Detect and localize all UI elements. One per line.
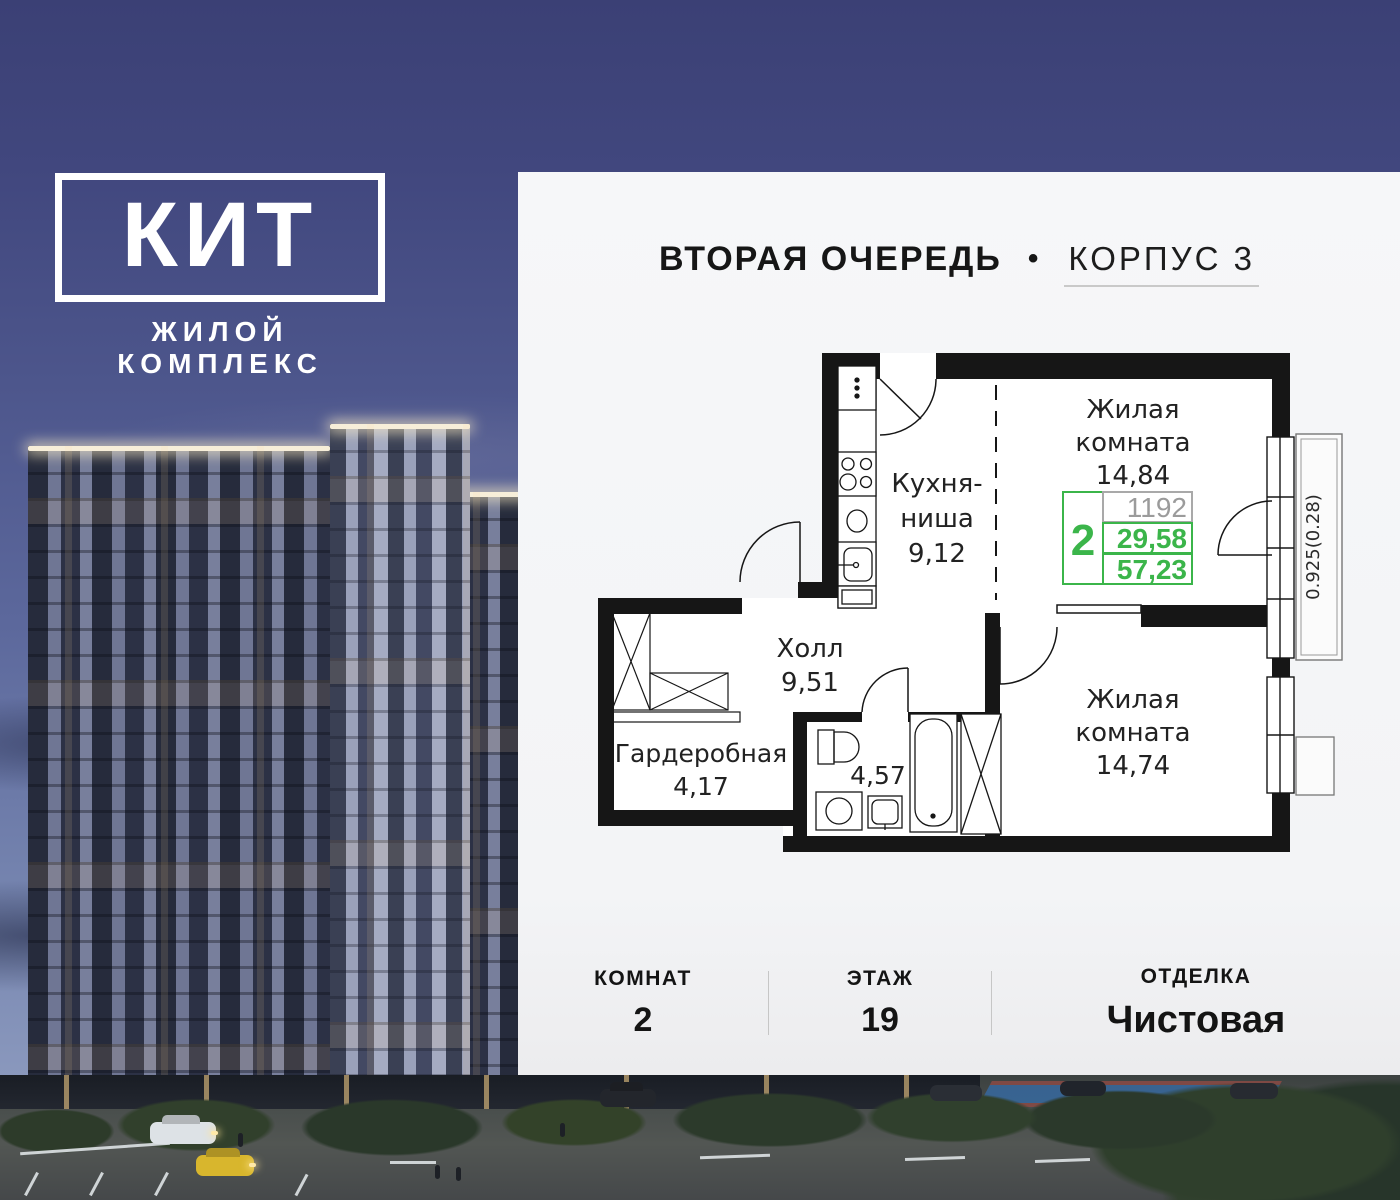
floor-label: ЭТАЖ: [847, 967, 914, 991]
finish-value: Чистовая: [1107, 999, 1286, 1042]
hall-area: 9,51: [781, 668, 839, 698]
hall-name: Холл: [777, 634, 844, 664]
poster-canvas: КИТ ЖИЛОЙ КОМПЛЕКС ВТОРАЯ ОЧЕРЕДЬ • КОРП…: [0, 0, 1400, 1200]
car-headlight: [249, 1163, 256, 1167]
panel-header: ВТОРАЯ ОЧЕРЕДЬ • КОРПУС 3: [518, 240, 1400, 287]
car-headlight: [211, 1131, 218, 1135]
finish-summary: ОТДЕЛКА Чистовая: [992, 948, 1400, 1058]
floor-value: 19: [861, 1001, 899, 1040]
finish-label: ОТДЕЛКА: [1141, 965, 1252, 989]
ac-shelf: [1296, 737, 1334, 795]
dark-car: [1060, 1081, 1106, 1096]
lit-windows-overlay: [28, 446, 330, 1092]
wardrobe-name: Гардеробная: [615, 739, 787, 768]
unit-number: 1192: [1127, 492, 1187, 523]
apartment-stats-box: 2 1192 29,58 57,23: [1063, 492, 1192, 585]
rooms-label: КОМНАТ: [594, 967, 692, 991]
bullet-separator: •: [1028, 242, 1039, 276]
pedestrian: [560, 1123, 565, 1137]
dark-car: [930, 1085, 982, 1101]
kitchen-name-line2: ниша: [900, 504, 974, 534]
car-cabin: [610, 1082, 642, 1091]
tower-left-facade: [28, 446, 330, 1092]
street-scene: [0, 1075, 1400, 1200]
building-link[interactable]: КОРПУС 3: [1064, 240, 1259, 287]
floor-summary: ЭТАЖ 19: [769, 948, 991, 1058]
living2-name-line1: Жилая: [1086, 685, 1179, 715]
kitchen-fixtures: [838, 366, 876, 608]
total-area-value: 57,23: [1117, 554, 1187, 585]
rooms-summary: КОМНАТ 2: [518, 948, 768, 1058]
lane-dash: [390, 1161, 436, 1164]
dark-car: [600, 1089, 656, 1107]
tower-right-facade: [330, 424, 470, 1092]
pedestrian: [456, 1167, 461, 1181]
bathroom-area: 4,57: [850, 761, 906, 790]
window-living-room-1: [1267, 437, 1294, 658]
kit-logo-subtitle: ЖИЛОЙ КОМПЛЕКС: [55, 316, 385, 380]
living2-name-line2: комната: [1075, 718, 1190, 748]
living1-area: 14,84: [1096, 461, 1170, 491]
balcony-dimension-label: 0.925(0.28): [1303, 494, 1324, 600]
pedestrian: [238, 1133, 243, 1147]
kitchen-name-line1: Кухня-: [891, 469, 982, 499]
rooms-value: 2: [634, 1001, 653, 1040]
lit-windows-overlay: [330, 424, 470, 1092]
kitchen-area: 9,12: [908, 539, 966, 569]
summary-bar: КОМНАТ 2 ЭТАЖ 19 ОТДЕЛКА Чистовая: [518, 948, 1400, 1058]
white-suv: [150, 1122, 216, 1144]
kit-logo-title: КИТ: [122, 189, 318, 281]
wardrobe-area: 4,17: [673, 772, 729, 801]
rooms-count: 2: [1071, 516, 1095, 565]
dark-car: [1230, 1083, 1278, 1099]
phase-label: ВТОРАЯ ОЧЕРЕДЬ: [659, 240, 1002, 279]
pedestrian: [435, 1165, 440, 1179]
interior-thin-wall: [1057, 605, 1141, 613]
car-cabin: [162, 1115, 200, 1124]
kit-logo-frame: КИТ: [55, 173, 385, 302]
living1-name-line1: Жилая: [1086, 395, 1179, 425]
car-cabin: [206, 1148, 240, 1157]
toilet-tank: [818, 730, 834, 764]
floor-plan: 0.925(0.28): [590, 345, 1350, 860]
balcony: 0.925(0.28): [1296, 434, 1342, 660]
main-tower: [28, 424, 470, 1092]
living1-name-line2: комната: [1075, 428, 1190, 458]
living2-area: 14,74: [1096, 751, 1170, 781]
bathroom-sink: [868, 796, 902, 828]
counter-end: [838, 586, 876, 608]
yellow-taxi: [196, 1155, 254, 1176]
window-living-room-2: [1267, 677, 1294, 793]
living-area-value: 29,58: [1117, 523, 1187, 554]
